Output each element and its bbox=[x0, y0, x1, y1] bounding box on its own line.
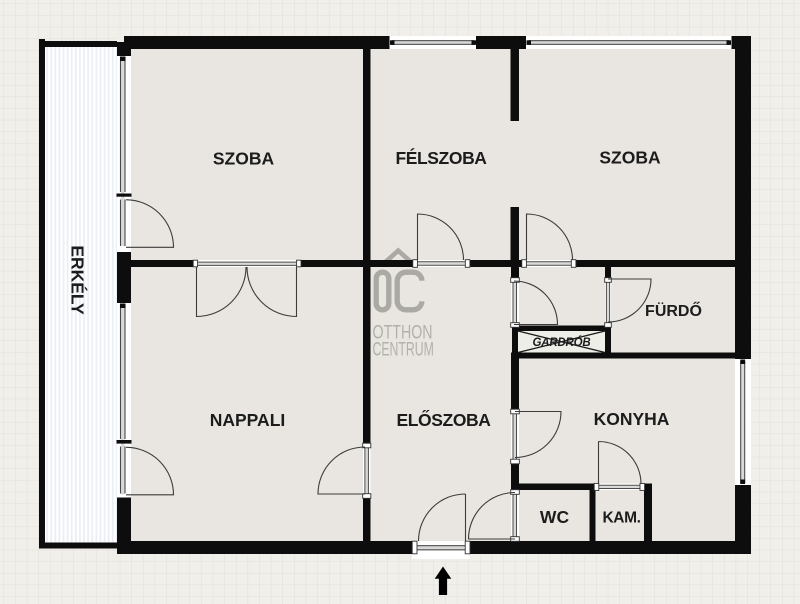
svg-text:FÉLSZOBA: FÉLSZOBA bbox=[395, 147, 487, 168]
svg-text:ELŐSZOBA: ELŐSZOBA bbox=[396, 409, 491, 430]
svg-text:KONYHA: KONYHA bbox=[594, 409, 670, 429]
svg-text:GARDRÓB: GARDRÓB bbox=[532, 336, 590, 349]
svg-text:CENTRUM: CENTRUM bbox=[373, 339, 434, 361]
svg-text:WC: WC bbox=[540, 507, 570, 527]
svg-text:SZOBA: SZOBA bbox=[213, 149, 275, 169]
svg-text:KAM.: KAM. bbox=[602, 510, 640, 527]
svg-text:ERKÉLY: ERKÉLY bbox=[68, 245, 89, 315]
svg-text:FÜRDŐ: FÜRDŐ bbox=[645, 301, 702, 320]
svg-text:SZOBA: SZOBA bbox=[599, 148, 661, 168]
svg-text:NAPPALI: NAPPALI bbox=[210, 410, 286, 430]
